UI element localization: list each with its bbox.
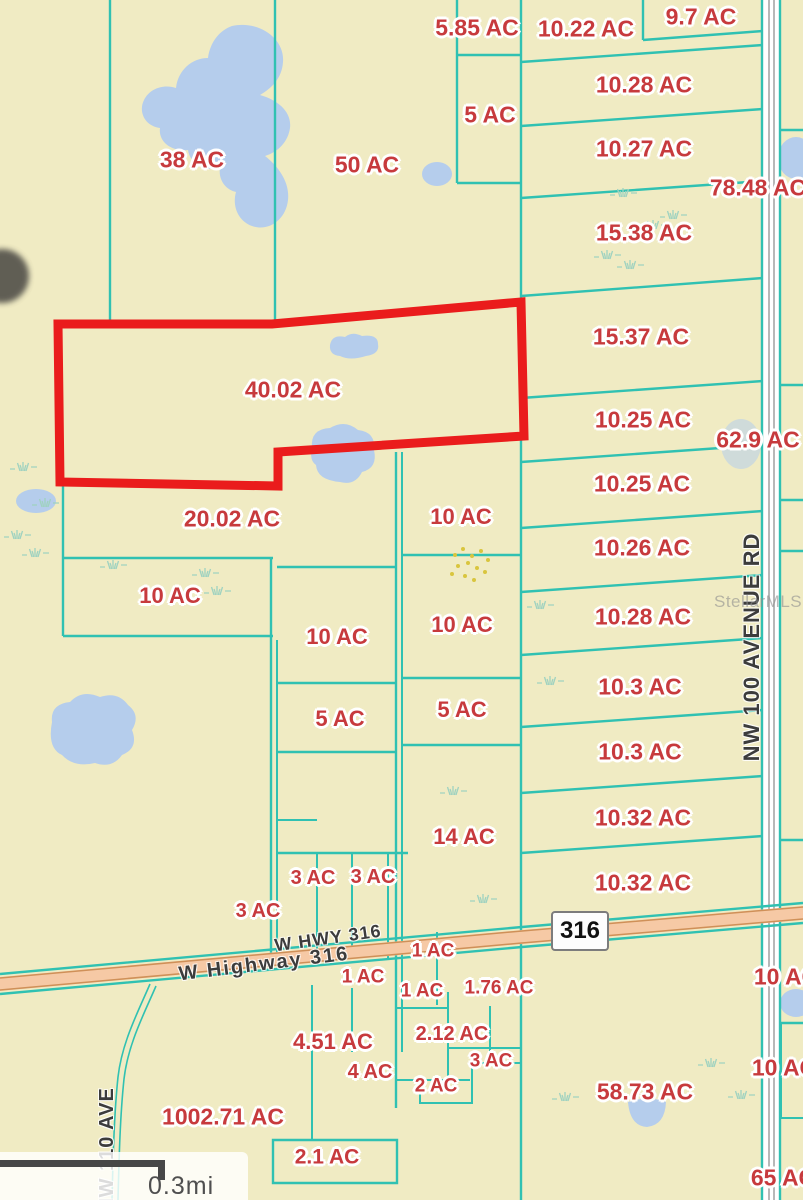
parcel-acreage-label: 2.12 AC [416, 1024, 489, 1044]
parcel-acreage-label: 5 AC [315, 708, 364, 730]
parcel-acreage-label: 10 AC [431, 614, 493, 636]
parcel-acreage-label: 3 AC [236, 901, 281, 921]
parcel-acreage-label: 4 AC [348, 1062, 393, 1082]
watermark: StellarMLS [714, 592, 802, 612]
highway-316-shield: 316 [551, 911, 609, 951]
parcel-acreage-label: 5 AC [437, 699, 486, 721]
parcel-acreage-label: 10.26 AC [594, 537, 690, 560]
parcel-acreage-label: 62.9 AC [716, 429, 800, 452]
parcel-acreage-label: 78.48 AC [710, 177, 803, 200]
pond [330, 334, 378, 359]
parcel-acreage-label: 58.73 AC [597, 1081, 693, 1104]
parcel-acreage-label: 10 AC [306, 626, 368, 648]
road-name-label: NW 100 AVENUE RD [741, 533, 763, 762]
parcel-acreage-label: 2 AC [415, 1077, 458, 1096]
scale-label: 0.3mi [148, 1172, 214, 1200]
speckle-dots [450, 547, 490, 582]
lake [51, 694, 136, 765]
parcel-acreage-label: 10.3 AC [598, 741, 682, 764]
map-graphics-layer [0, 0, 803, 1200]
parcel-acreage-label: 10.25 AC [594, 473, 690, 496]
parcel-acreage-label: 10 AC [752, 1057, 803, 1080]
parcel-acreage-label: 15.37 AC [593, 326, 689, 349]
parcel-acreage-label: 10.27 AC [596, 138, 692, 161]
parcel-acreage-label: 15.38 AC [596, 222, 692, 245]
parcel-acreage-label: 1002.71 AC [162, 1106, 284, 1129]
parcel-map-canvas: 38 AC50 AC5.85 AC10.22 AC9.7 AC10.28 AC5… [0, 0, 803, 1200]
parcel-acreage-label: 1 AC [342, 968, 385, 987]
highway-shield-number: 316 [560, 917, 600, 945]
parcel-acreage-label: 1.76 AC [465, 979, 534, 998]
parcel-acreage-label: 3 AC [470, 1052, 513, 1071]
parcel-acreage-label: 20.02 AC [184, 508, 280, 531]
parcel-acreage-label: 40.02 AC [245, 379, 341, 402]
parcel-acreage-label: 10.3 AC [598, 676, 682, 699]
parcel-acreage-label: 38 AC [160, 149, 224, 172]
parcel-acreage-label: 3 AC [291, 868, 336, 888]
parcel-acreage-label: 10.22 AC [538, 18, 634, 41]
parcel-acreage-label: 9.7 AC [666, 6, 737, 29]
pond [780, 989, 803, 1017]
parcel-acreage-label: 1 AC [412, 942, 455, 961]
parcel-acreage-label: 3 AC [351, 867, 396, 887]
parcel-acreage-label: 14 AC [433, 826, 495, 848]
parcel-acreage-label: 10.25 AC [595, 409, 691, 432]
parcel-acreage-label: 50 AC [335, 154, 399, 177]
parcel-acreage-label: 10.28 AC [596, 74, 692, 97]
parcel-acreage-label: 10.32 AC [595, 807, 691, 830]
parcel-acreage-label: 10.28 AC [595, 606, 691, 629]
lake [142, 25, 290, 228]
parcel-acreage-label: 5 AC [464, 104, 516, 127]
parcel-acreage-label: 10 AC [430, 506, 492, 528]
parcel-acreage-label: 2.1 AC [295, 1147, 360, 1168]
dark-pond [0, 249, 29, 303]
pond [778, 137, 803, 179]
parcel-acreage-label: 10 AC [139, 585, 201, 607]
parcel-acreage-label: 10.32 AC [595, 872, 691, 895]
parcel-acreage-label: 65 AC [751, 1167, 803, 1190]
pond [422, 162, 452, 186]
parcel-acreage-label: 4.51 AC [293, 1031, 373, 1053]
scale-bar [0, 1160, 165, 1167]
parcel-acreage-label: 10 AC [754, 966, 803, 989]
parcel-acreage-label: 5.85 AC [435, 17, 519, 40]
parcel-acreage-label: 1 AC [401, 982, 444, 1001]
